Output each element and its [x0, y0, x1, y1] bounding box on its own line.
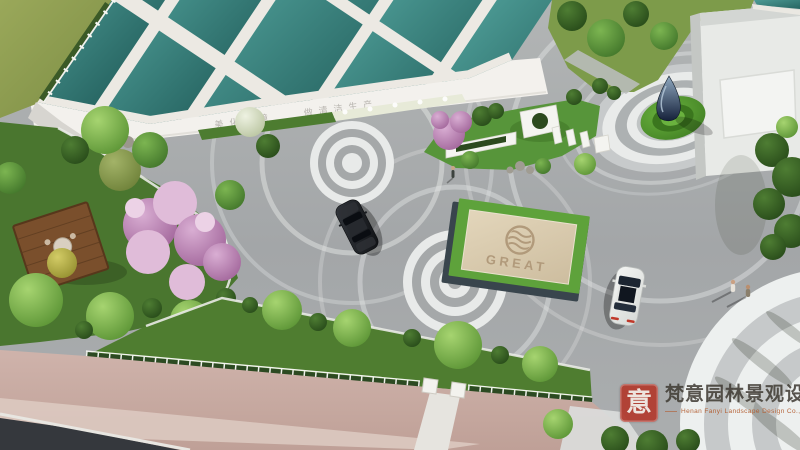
circular-paving-west — [310, 121, 394, 205]
studio-name: 梵意园林景观设计 — [665, 384, 800, 406]
seal-character: 意 — [626, 390, 652, 416]
studio-watermark: 意 梵意园林景观设计 Henan Fanyi Landscape Design … — [620, 384, 800, 422]
landscape-scene: 美化环境 做清洁生产 — [0, 0, 800, 450]
studio-seal: 意 — [620, 384, 658, 422]
studio-subtitle: Henan Fanyi Landscape Design Co.,Ltd — [665, 408, 800, 415]
rendering-canvas: 美化环境 做清洁生产 — [0, 0, 800, 450]
divider — [665, 411, 677, 412]
yellow-shrub — [47, 248, 77, 278]
